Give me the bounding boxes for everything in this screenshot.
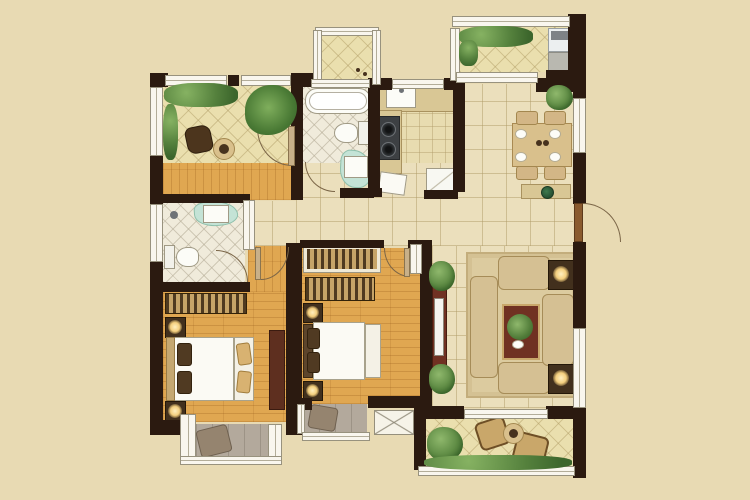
utility-drain-1	[356, 68, 360, 72]
wall-segment	[573, 242, 586, 328]
entry-door-swing	[583, 203, 621, 242]
dining-plate-1	[515, 129, 527, 139]
wall-segment	[573, 84, 586, 98]
washer-panel	[551, 31, 569, 40]
hallway-floor-patch	[248, 201, 298, 246]
dining-centerpiece-2	[543, 140, 549, 146]
garden-hedge-top	[164, 83, 238, 107]
basin-inner	[203, 205, 229, 223]
dining-chair-3	[516, 166, 538, 180]
lamp-1	[168, 320, 182, 334]
lamp-4	[306, 384, 319, 397]
dining-chair-2	[544, 111, 566, 125]
bed-left-pillow-1	[177, 343, 192, 366]
dining-plate-4	[549, 152, 561, 162]
corner-lamp-se	[553, 370, 569, 386]
bed-left-headboard	[166, 337, 175, 401]
sofa-left	[470, 276, 498, 378]
sofa-top	[498, 256, 550, 290]
wall-segment	[150, 420, 184, 435]
stove-burner-2	[381, 142, 396, 157]
dresser-left-bedroom	[269, 330, 285, 410]
bathtub-basin	[309, 92, 367, 110]
bed-middle-foot	[365, 324, 381, 378]
wall-segment	[453, 80, 465, 192]
entry-door-leaf	[574, 203, 583, 242]
stove-burner-1	[381, 122, 396, 137]
garden-table-top	[219, 144, 229, 154]
wall-segment	[300, 240, 384, 248]
bed-middle-pillow-1	[307, 328, 320, 349]
wall-segment	[546, 406, 576, 419]
wall-segment	[228, 75, 239, 86]
dining-plant	[546, 85, 573, 110]
lamp-3	[306, 306, 319, 319]
dining-centerpiece-1	[536, 140, 542, 146]
wall-segment	[368, 188, 382, 197]
sofa-right	[542, 294, 574, 366]
laundry-hedge-corner	[459, 40, 478, 66]
balcony-sliding-door	[464, 409, 548, 419]
coffee-table-plant	[507, 314, 533, 340]
dining-plate-2	[549, 129, 561, 139]
garden-door-leaf	[288, 126, 295, 166]
bedroom-middle-door-leaf	[404, 248, 410, 277]
utility-window-top	[315, 27, 379, 36]
wall-segment	[368, 396, 422, 408]
corner-lamp-ne	[553, 266, 569, 282]
coffee-table-tray	[512, 340, 524, 349]
kitchen-window	[392, 79, 444, 89]
wall-segment	[368, 88, 380, 192]
bay-middle-frame-left	[297, 404, 305, 434]
wall-segment	[150, 194, 250, 203]
dining-plate-3	[515, 152, 527, 162]
living-window-right	[573, 328, 586, 408]
wall-segment	[420, 406, 464, 419]
toilet-inner-bowl	[176, 247, 199, 267]
tv-plant-top	[429, 261, 455, 291]
basin-top	[344, 156, 368, 178]
toilet-inner-tank	[164, 245, 175, 269]
utility-frame-left	[313, 30, 322, 85]
bed-left-pillow-2	[177, 371, 192, 394]
ac-platform	[374, 410, 414, 435]
sofa-bottom	[498, 362, 550, 394]
bed-left-quilt-2	[236, 370, 252, 393]
dining-window-right	[573, 98, 586, 153]
kitchen-prep-table	[378, 171, 408, 196]
balcony-table-top	[509, 429, 518, 438]
bath-fixture	[170, 211, 178, 219]
bathroom-top-window	[311, 79, 370, 88]
utility-drain-2	[363, 72, 367, 76]
wall-segment	[424, 190, 458, 199]
tv-plant-bottom	[429, 364, 455, 394]
bedroom-middle-door-frame	[410, 244, 422, 274]
bathroom-inner-window	[150, 204, 163, 262]
dining-chair-4	[544, 166, 566, 180]
toilet-top-bowl	[334, 123, 358, 143]
balcony-hedge	[424, 455, 572, 470]
entry-plant-bowl	[541, 186, 554, 199]
floor-plan	[0, 0, 750, 500]
dresser-middle-bedroom	[305, 277, 375, 301]
dining-chair-1	[516, 111, 538, 125]
bay-left-frame-right	[268, 424, 282, 460]
wall-segment	[573, 153, 586, 204]
garden-window-left	[150, 87, 163, 156]
bed-middle-pillow-2	[307, 352, 320, 373]
bay-left-frame-left	[180, 414, 196, 460]
tv	[434, 298, 444, 356]
utility-frame-right	[372, 30, 381, 85]
wardrobe-middle-bedroom	[304, 246, 380, 272]
bed-middle-mattress	[313, 322, 365, 380]
bed-left-quilt-1	[236, 342, 253, 366]
wardrobe-left-bedroom	[165, 293, 247, 314]
wall-segment	[291, 188, 303, 200]
garden-hedge-left	[163, 104, 178, 160]
wall-segment	[150, 282, 250, 292]
bay-middle-rail	[302, 432, 370, 441]
laundry-window-inner	[456, 72, 538, 83]
bathroom-inner-door-frame	[243, 200, 255, 250]
bay-left-rail	[180, 456, 282, 465]
